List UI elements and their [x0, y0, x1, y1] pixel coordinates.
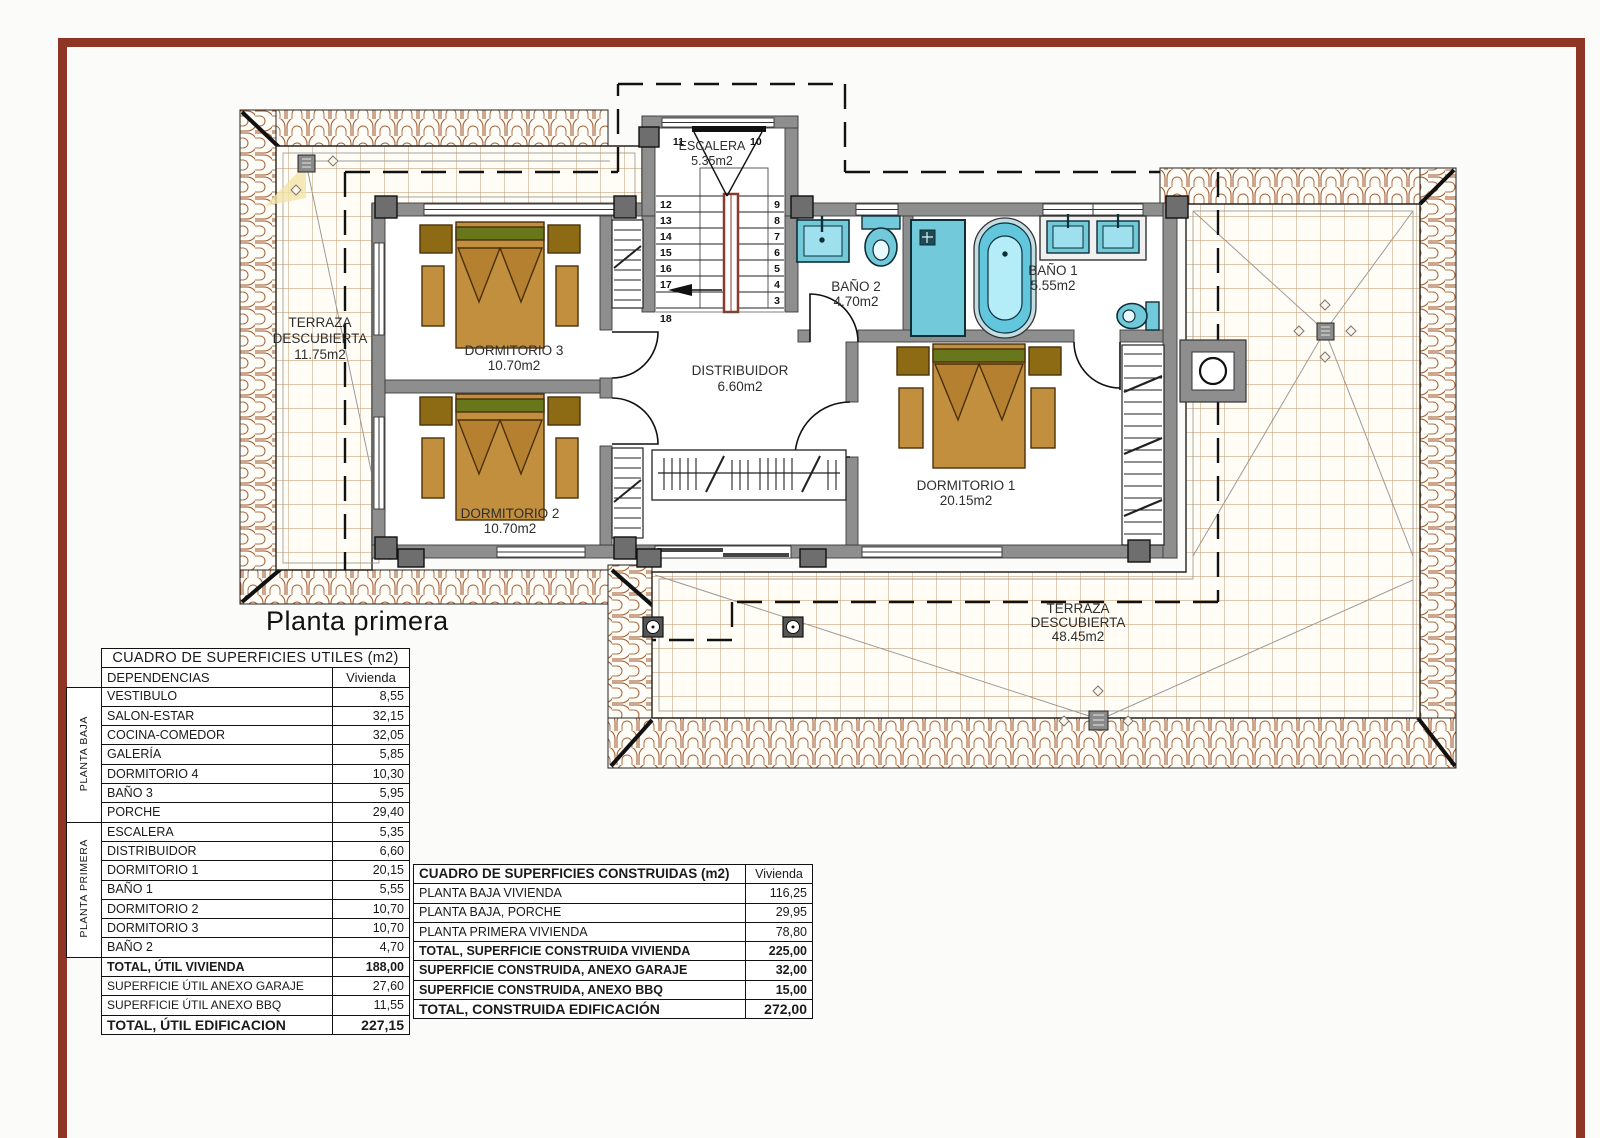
svg-text:4.70m2: 4.70m2: [833, 294, 878, 309]
svg-text:12: 12: [660, 199, 672, 211]
bano1-toilet: [1117, 302, 1159, 330]
total-row: TOTAL, CONSTRUIDA EDIFICACIÓN272,00: [414, 1000, 813, 1019]
svg-text:DORMITORIO 1: DORMITORIO 1: [917, 478, 1016, 493]
group-planta-primera: PLANTA PRIMERA: [67, 822, 102, 957]
stair-landing-edge: [692, 126, 766, 132]
total-row: SUPERFICIE CONSTRUIDA, ANEXO GARAJE32,00: [414, 961, 813, 980]
table-row: DORMITORIO 120,15: [67, 861, 410, 880]
table-row: SALON-ESTAR32,15: [67, 706, 410, 725]
bano1-double-sink: [1040, 214, 1146, 260]
dormitorio1-wardrobe: [1122, 345, 1164, 545]
svg-text:6: 6: [774, 247, 780, 259]
table-row: BAÑO 35,95: [67, 784, 410, 803]
svg-text:17: 17: [660, 279, 672, 291]
svg-text:48.45m2: 48.45m2: [1052, 629, 1105, 644]
table-superficies-utiles: CUADRO DE SUPERFICIES UTILES (m2) DEPEND…: [66, 648, 410, 1035]
table-row: PORCHE29,40: [67, 803, 410, 822]
label-bano2: BAÑO 2 4.70m2: [831, 279, 881, 309]
shower: [911, 220, 965, 336]
table-row: COCINA-COMEDOR32,05: [67, 726, 410, 745]
total-row: TOTAL, ÚTIL VIVIENDA188,00: [67, 957, 410, 976]
svg-text:ESCALERA: ESCALERA: [679, 139, 746, 153]
svg-text:6.60m2: 6.60m2: [717, 379, 762, 394]
bano2-toilet: [862, 216, 900, 266]
table-row: PLANTA BAJA, PORCHE29,95: [414, 903, 813, 922]
table-row: PLANTA BAJA VIVIENDA116,25: [414, 884, 813, 903]
svg-text:8: 8: [774, 215, 780, 227]
svg-text:DISTRIBUIDOR: DISTRIBUIDOR: [692, 363, 789, 378]
svg-text:4: 4: [774, 279, 780, 291]
svg-text:18: 18: [660, 313, 672, 325]
hall-closet-bottom: [612, 448, 643, 538]
svg-text:14: 14: [660, 231, 672, 243]
svg-text:10.70m2: 10.70m2: [488, 358, 541, 373]
svg-text:DESCUBIERTA: DESCUBIERTA: [1031, 615, 1126, 630]
hall-closet-top: [612, 220, 643, 308]
page: { "title": "Planta primera", "frame_colo…: [0, 0, 1600, 1010]
svg-text:3: 3: [774, 295, 780, 307]
svg-text:16: 16: [660, 263, 672, 275]
svg-text:10.70m2: 10.70m2: [484, 521, 537, 536]
bathtub: [974, 218, 1036, 338]
total-row: SUPERFICIE CONSTRUIDA, ANEXO BBQ15,00: [414, 980, 813, 999]
svg-text:DORMITORIO 2: DORMITORIO 2: [461, 506, 560, 521]
svg-text:BAÑO 1: BAÑO 1: [1028, 263, 1078, 278]
svg-text:9: 9: [774, 199, 780, 211]
bano2-sink: [797, 216, 849, 262]
table-row: SUPERFICIE ÚTIL ANEXO GARAJE27,60: [67, 977, 410, 996]
svg-text:13: 13: [660, 215, 672, 227]
svg-text:5.35m2: 5.35m2: [691, 154, 733, 168]
col-header-vivienda: Vivienda: [333, 668, 410, 687]
svg-text:15: 15: [660, 247, 672, 259]
col-header-vivienda: Vivienda: [746, 865, 813, 884]
svg-text:TERRAZA: TERRAZA: [288, 315, 351, 330]
table-row: BAÑO 24,70: [67, 938, 410, 957]
label-bano1: BAÑO 1 5.55m2: [1028, 263, 1078, 293]
table-title: CUADRO DE SUPERFICIES UTILES (m2): [102, 649, 410, 668]
svg-text:TERRAZA: TERRAZA: [1046, 601, 1109, 616]
col-header-dependencias: DEPENDENCIAS: [102, 668, 333, 687]
group-planta-baja: PLANTA BAJA: [67, 687, 102, 822]
table-row: PLANTA PRIMERA VIVIENDA78,80: [414, 922, 813, 941]
table-title: CUADRO DE SUPERFICIES CONSTRUIDAS (m2): [414, 865, 746, 884]
svg-text:5: 5: [774, 263, 780, 275]
table-row: DISTRIBUIDOR6,60: [67, 841, 410, 860]
total-row: TOTAL, ÚTIL EDIFICACION227,15: [67, 1015, 410, 1034]
svg-text:7: 7: [774, 231, 780, 243]
svg-text:DESCUBIERTA: DESCUBIERTA: [273, 331, 368, 346]
table-superficies-construidas: CUADRO DE SUPERFICIES CONSTRUIDAS (m2) V…: [413, 864, 813, 1019]
page-title: Planta primera: [266, 606, 449, 637]
svg-text:5.55m2: 5.55m2: [1030, 278, 1075, 293]
table-row: DORMITORIO 410,30: [67, 764, 410, 783]
distribuidor-closet: [652, 450, 846, 500]
table-row: PLANTA PRIMERA ESCALERA5,35: [67, 822, 410, 841]
svg-text:BAÑO 2: BAÑO 2: [831, 279, 881, 294]
table-row: DORMITORIO 210,70: [67, 899, 410, 918]
table-row: GALERÍA5,85: [67, 745, 410, 764]
table-row: DORMITORIO 310,70: [67, 919, 410, 938]
svg-text:20.15m2: 20.15m2: [940, 493, 993, 508]
svg-text:10: 10: [750, 136, 762, 148]
svg-text:11.75m2: 11.75m2: [294, 347, 346, 362]
table-row: PLANTA BAJA VESTIBULO8,55: [67, 687, 410, 706]
table-row: SUPERFICIE ÚTIL ANEXO BBQ11,55: [67, 996, 410, 1015]
svg-text:DORMITORIO 3: DORMITORIO 3: [465, 343, 564, 358]
total-row: TOTAL, SUPERFICIE CONSTRUIDA VIVIENDA225…: [414, 942, 813, 961]
table-row: BAÑO 15,55: [67, 880, 410, 899]
chimney: [1180, 340, 1246, 402]
